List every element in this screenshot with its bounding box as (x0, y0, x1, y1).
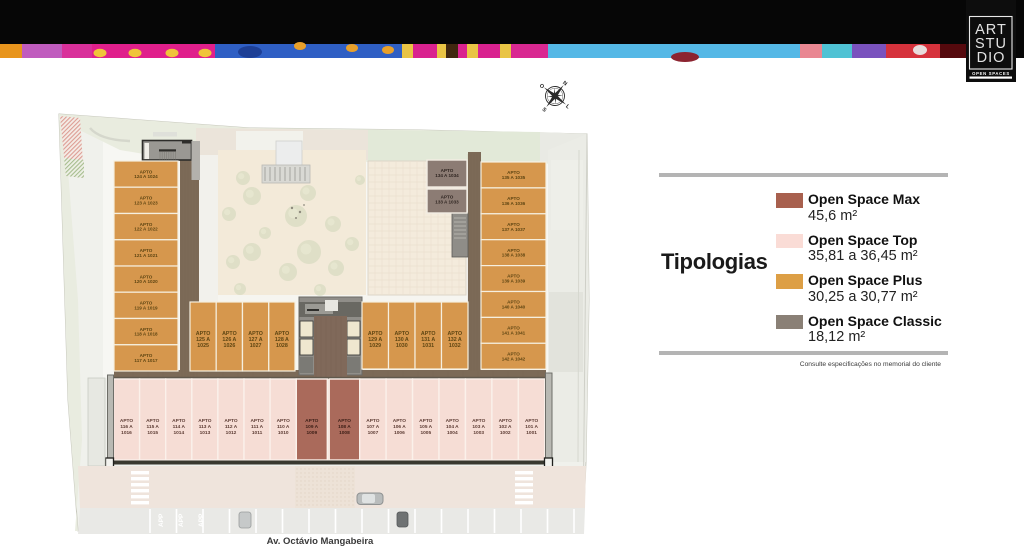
svg-text:APTO111 A1011: APTO111 A1011 (250, 418, 264, 436)
svg-text:APTO131 A1031: APTO131 A1031 (421, 331, 436, 349)
svg-text:APTO105 A1005: APTO105 A1005 (419, 418, 433, 436)
svg-text:APTO128 A1028: APTO128 A1028 (275, 331, 290, 349)
svg-text:APP: APP (198, 513, 205, 527)
svg-text:APTO132 A1032: APTO132 A1032 (447, 331, 462, 349)
svg-text:APTO116 A1016: APTO116 A1016 (120, 418, 134, 436)
svg-text:APP: APP (178, 513, 185, 527)
svg-text:APTO113 A1013: APTO113 A1013 (198, 418, 212, 436)
svg-text:OPEN SPACES: OPEN SPACES (972, 71, 1010, 76)
svg-text:N: N (561, 80, 568, 87)
svg-text:APTO109 A1009: APTO109 A1009 (305, 418, 319, 436)
svg-text:APTO125 A1025: APTO125 A1025 (196, 331, 211, 349)
svg-text:S: S (541, 107, 548, 114)
svg-text:APTO114 A1014: APTO114 A1014 (172, 418, 186, 436)
svg-text:APTO107 A1007: APTO107 A1007 (366, 418, 380, 436)
svg-text:APTO106 A1006: APTO106 A1006 (393, 418, 407, 436)
svg-text:APTO126 A1026: APTO126 A1026 (222, 331, 237, 349)
svg-text:APTO127 A1027: APTO127 A1027 (248, 331, 263, 349)
svg-text:DIO: DIO (977, 50, 1006, 66)
svg-text:APTO101 A1001: APTO101 A1001 (525, 418, 539, 436)
svg-text:O: O (538, 83, 546, 91)
svg-text:APTO130 A1030: APTO130 A1030 (394, 331, 409, 349)
svg-text:APTO115 A1015: APTO115 A1015 (146, 418, 160, 436)
svg-text:APTO129 A1029: APTO129 A1029 (368, 331, 383, 349)
svg-text:APTO104 A1004: APTO104 A1004 (446, 418, 460, 436)
svg-text:APTO112 A1012: APTO112 A1012 (224, 418, 238, 436)
svg-text:APTO110 A1010: APTO110 A1010 (277, 418, 291, 436)
svg-text:APP: APP (158, 513, 165, 527)
svg-text:APTO108 A1008: APTO108 A1008 (338, 418, 352, 436)
svg-text:APTO102 A1002: APTO102 A1002 (499, 418, 513, 436)
svg-text:APTO103 A1003: APTO103 A1003 (472, 418, 486, 436)
svg-text:L: L (564, 104, 571, 111)
